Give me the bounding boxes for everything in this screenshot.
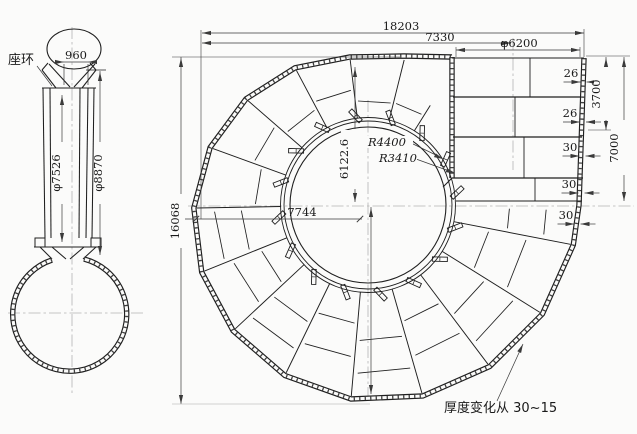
dimension-arrow xyxy=(585,191,594,195)
stay-ring-leader xyxy=(37,66,52,86)
thickness-note: 厚度变化从 30~15 xyxy=(444,400,557,416)
drawing-line xyxy=(42,63,48,70)
plate-joint xyxy=(241,211,249,250)
stay-vane-hatch xyxy=(280,180,282,184)
plate-joint xyxy=(305,344,351,357)
plate-joint xyxy=(360,336,402,340)
plate-joint xyxy=(396,104,421,115)
dim-left-to-center: 7744 xyxy=(287,205,316,219)
plate-joint xyxy=(255,169,261,204)
drawing-line xyxy=(79,88,80,238)
plate-seam xyxy=(392,289,422,393)
drawing-line xyxy=(42,70,56,88)
plate-joint xyxy=(319,313,355,323)
stay-vane-hatch xyxy=(413,281,415,285)
plate-thickness-30c: 30 xyxy=(559,208,574,222)
stay-ring-label: 座环 xyxy=(8,53,34,68)
plate-joint xyxy=(507,240,526,287)
dimension-arrow xyxy=(622,58,626,67)
plate-seam xyxy=(248,101,302,148)
dim-inlet-offset: 7330 xyxy=(425,30,454,44)
radius-label-inner: R3410 xyxy=(378,151,417,165)
dimension-arrow xyxy=(604,58,608,67)
dim-total-width: 18203 xyxy=(383,19,420,33)
plate-thickness-30b: 30 xyxy=(562,177,577,191)
dim-top-to-center: 6122.6 xyxy=(337,139,351,179)
dimension-arrow xyxy=(202,41,211,45)
drawing-line xyxy=(86,88,88,238)
drawing-line xyxy=(43,88,45,238)
plate-seam xyxy=(204,238,286,271)
plate-joint xyxy=(544,210,546,235)
drawing-line xyxy=(40,247,52,259)
drawing-line xyxy=(443,178,452,187)
stay-vane-hatch xyxy=(456,191,459,194)
plate-joint xyxy=(316,90,351,101)
plate-joint xyxy=(255,128,274,161)
dimension-arrow xyxy=(98,72,102,81)
stay-vane-hatch xyxy=(454,225,456,229)
dimension-arrow xyxy=(353,193,357,202)
plate-joint xyxy=(288,110,315,131)
dimension-arrow xyxy=(60,233,64,242)
plate-seam xyxy=(351,292,360,396)
stay-vane-hatch xyxy=(321,125,323,129)
dimension-arrow xyxy=(571,48,580,52)
plate-joint xyxy=(358,368,410,373)
radius-label-outer: R4400 xyxy=(367,135,406,149)
plate-joint xyxy=(415,333,459,355)
plate-seam xyxy=(213,149,286,176)
dim-inlet-diameter: φ6200 xyxy=(500,36,537,50)
dimension-arrow xyxy=(586,154,595,158)
plate-seam xyxy=(414,105,430,130)
dim-total-height: 16068 xyxy=(168,203,182,240)
dimension-arrow xyxy=(581,222,590,226)
dimension-arrow xyxy=(456,48,465,52)
spiral-case-drawing: 座环 960 φ7526 φ8870 18203 7330 φ6200 1606… xyxy=(0,0,637,434)
plate-thickness-26a: 26 xyxy=(564,66,579,80)
stay-vane-hatch xyxy=(343,291,347,293)
plate-seam xyxy=(286,284,329,373)
plate-thickness-30a: 30 xyxy=(563,140,578,154)
dimension-arrow xyxy=(622,192,626,201)
flange-step xyxy=(91,238,101,247)
stay-vane-hatch xyxy=(444,158,448,160)
engineering-drawing-page: 座环 960 φ7526 φ8870 18203 7330 φ6200 1606… xyxy=(0,0,637,434)
dimension-arrow xyxy=(575,31,584,35)
dim-inner-diameter: φ7526 xyxy=(49,154,63,191)
plate-seam xyxy=(235,265,304,329)
plate-joint xyxy=(253,318,294,348)
dimension-arrow xyxy=(353,68,357,77)
dimension-arrow xyxy=(566,222,575,226)
plate-thickness-26b: 26 xyxy=(563,106,578,120)
plate-joint xyxy=(262,251,281,282)
dimension-layer xyxy=(37,29,630,404)
centerlines-layer xyxy=(8,27,634,400)
dimension-arrow xyxy=(571,120,580,124)
plate-seam xyxy=(442,251,540,312)
dim-outer-diameter: φ8870 xyxy=(91,154,105,191)
wall-band-core xyxy=(194,56,584,399)
drawing-line xyxy=(82,70,96,88)
plate-joint xyxy=(474,232,488,268)
plate-joint xyxy=(507,209,509,229)
dimension-arrow xyxy=(98,246,102,255)
plate-joint xyxy=(274,297,307,321)
stay-vane-hatch xyxy=(388,117,392,119)
dimension-arrow xyxy=(179,58,183,67)
stay-vane-hatch xyxy=(379,293,382,296)
dimension-arrow xyxy=(517,344,523,353)
dimension-arrow xyxy=(369,385,373,394)
drawing-line xyxy=(52,247,66,259)
dimension-arrow xyxy=(604,121,608,130)
plate-seam xyxy=(197,207,281,208)
plate-joint xyxy=(404,304,438,321)
dimension-arrow xyxy=(179,395,183,404)
dim-top-width: 960 xyxy=(65,48,87,62)
stay-vane-hatch xyxy=(277,216,280,219)
dimension-arrow xyxy=(60,96,64,105)
plate-joint xyxy=(454,282,483,314)
dim-half-depth: 7000 xyxy=(607,133,621,162)
dimension-arrow xyxy=(572,80,581,84)
plate-seam xyxy=(454,222,570,245)
plate-joint xyxy=(476,301,513,341)
plate-joint xyxy=(358,101,391,103)
dimension-arrow xyxy=(202,31,211,35)
dimension-arrow xyxy=(369,208,373,217)
dimension-arrow xyxy=(55,60,64,64)
plate-seam xyxy=(389,60,404,120)
dimension-arrow xyxy=(586,120,595,124)
flange-step xyxy=(35,238,45,247)
dim-upper-depth: 3700 xyxy=(589,79,603,108)
plate-joint xyxy=(234,263,259,302)
stay-vane-hatch xyxy=(288,250,292,252)
